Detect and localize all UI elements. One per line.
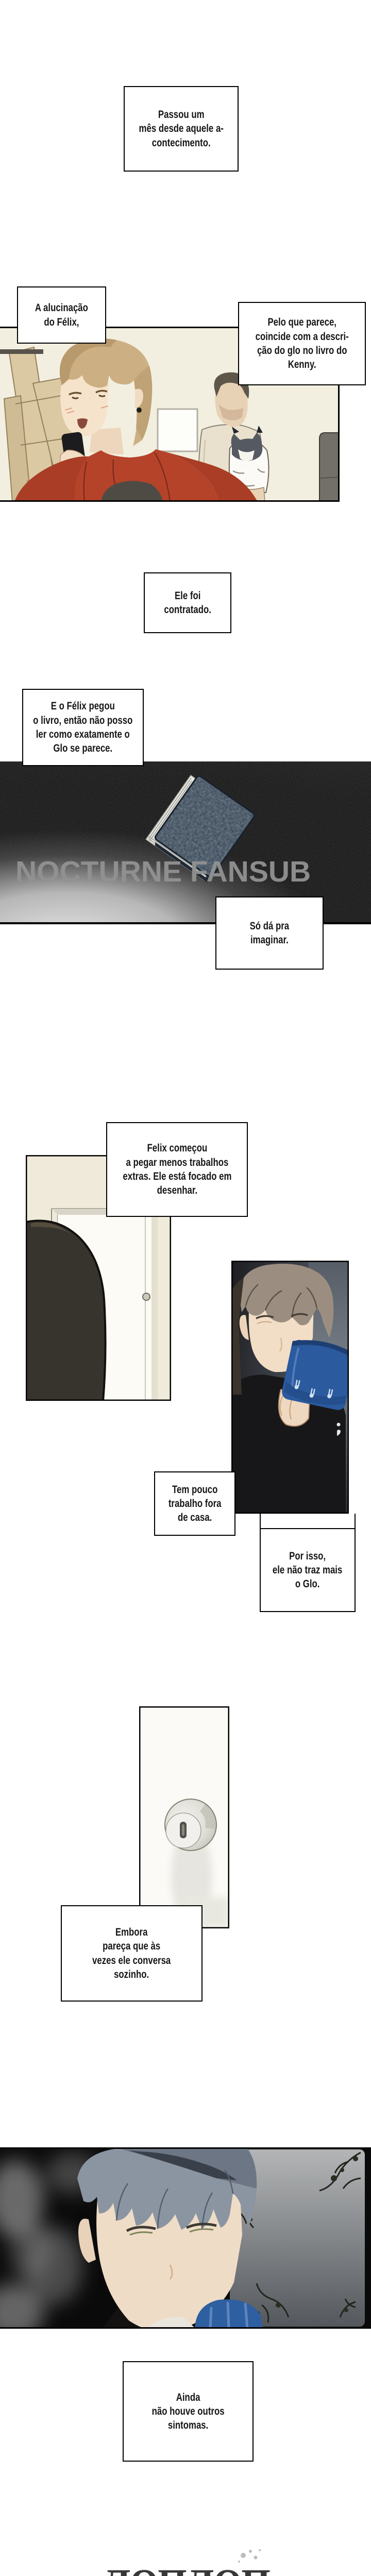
svg-text:NOCTURNE FANSUB: NOCTURNE FANSUB xyxy=(15,855,311,888)
